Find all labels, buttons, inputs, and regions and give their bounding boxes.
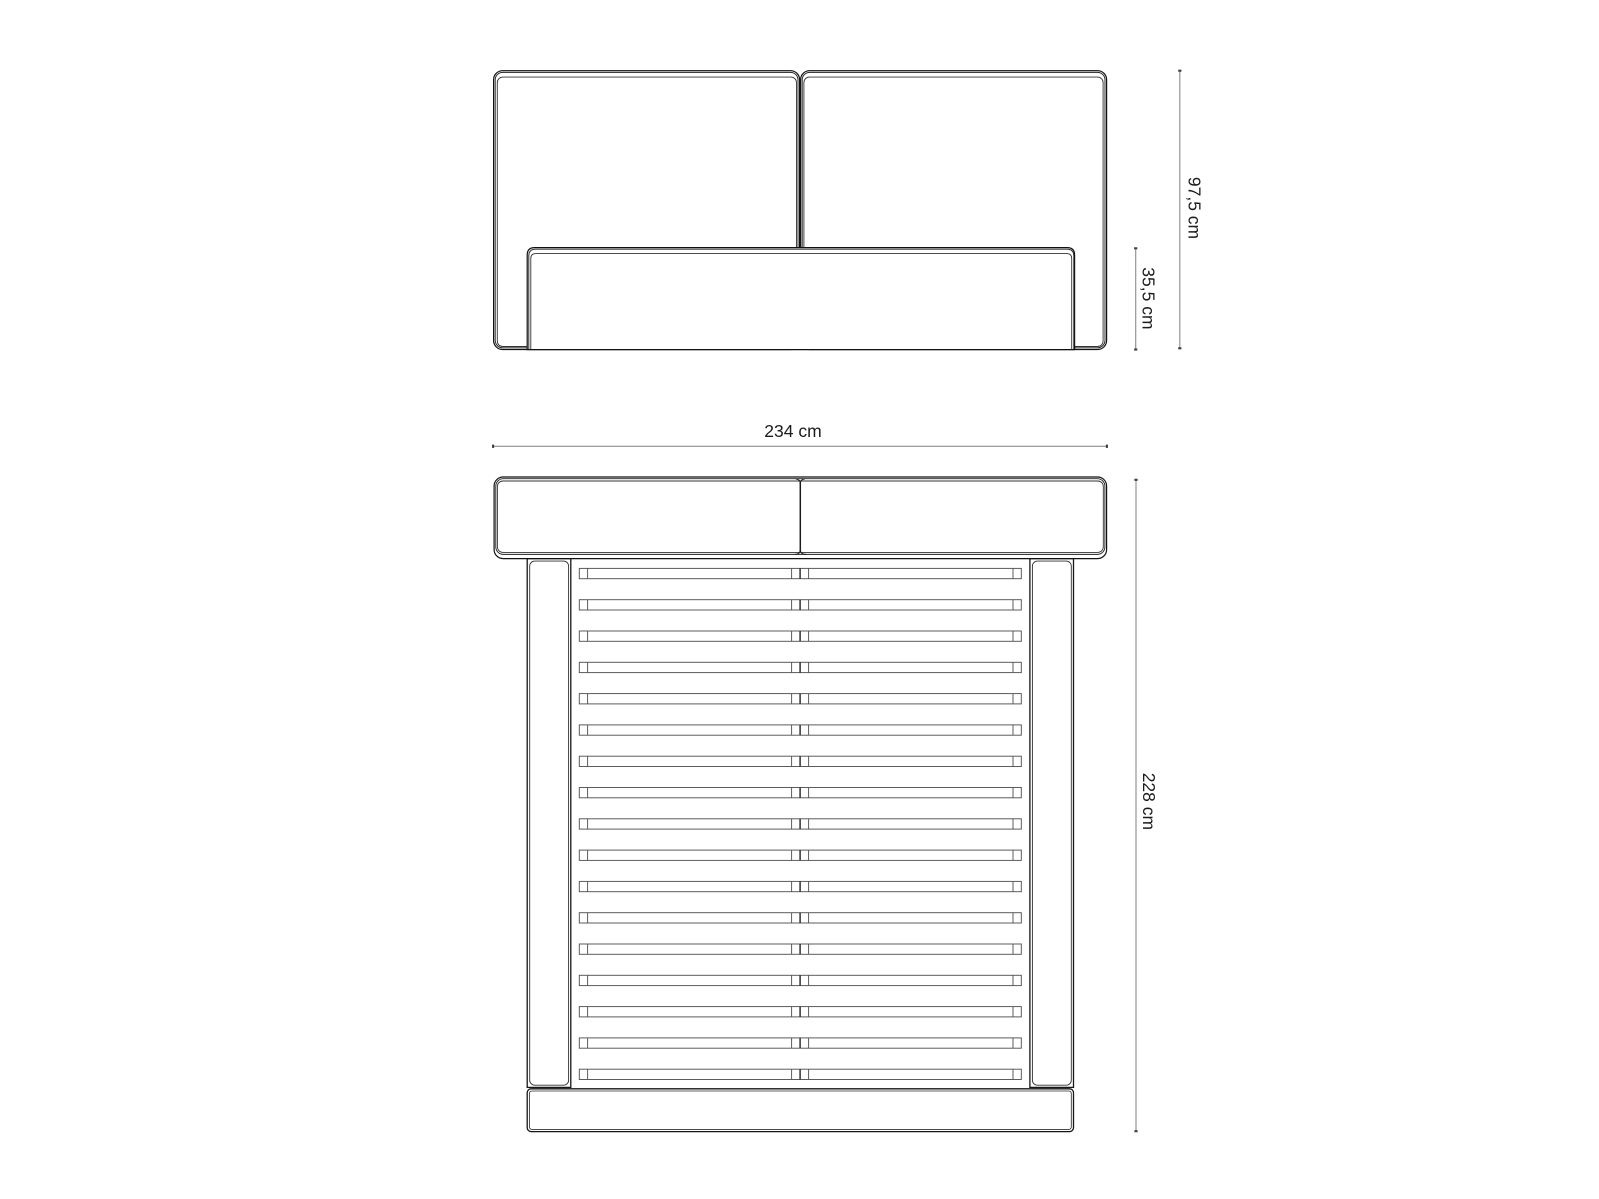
svg-text:35,5 cm: 35,5 cm xyxy=(1139,267,1159,329)
svg-text:234 cm: 234 cm xyxy=(764,421,821,441)
svg-text:228 cm: 228 cm xyxy=(1139,773,1159,830)
svg-text:97,5 cm: 97,5 cm xyxy=(1184,177,1204,239)
